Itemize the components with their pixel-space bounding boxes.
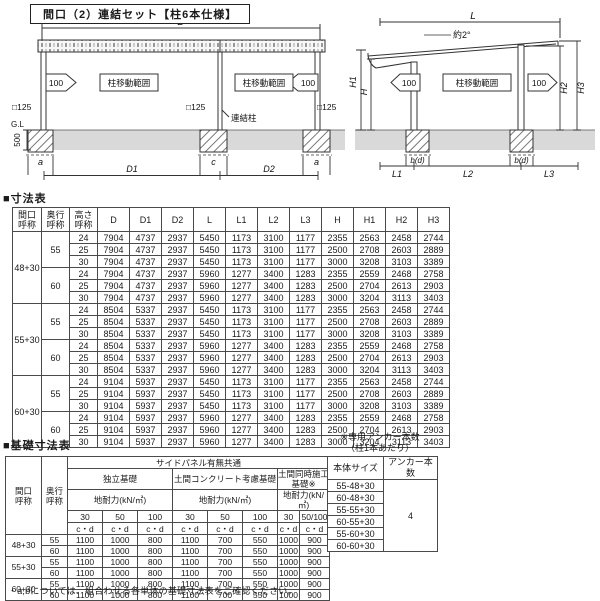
table-cell: 5450	[194, 388, 226, 400]
table-cell: 30	[70, 364, 98, 376]
dim-table-row: 3085045337293759601277340012833000320431…	[13, 364, 450, 376]
front-move-range-left: 柱移動範囲	[108, 78, 151, 88]
table-cell: 700	[208, 535, 243, 546]
table-cell: 700	[208, 557, 243, 568]
dim-table-row: 6024790447372937596012773400128323552559…	[13, 268, 450, 280]
table-cell: 2937	[162, 412, 194, 424]
table-cell: 30	[70, 328, 98, 340]
table-cell: 2937	[162, 376, 194, 388]
side-arrow-value-right: 100	[532, 78, 546, 88]
table-cell: 25	[70, 316, 98, 328]
table-cell: 3400	[258, 280, 290, 292]
table-cell: 3400	[258, 292, 290, 304]
anchor-table: 本体サイズ アンカー本数 55-48+30460-48+3055-55+3060…	[327, 456, 438, 552]
table-cell: 3400	[258, 340, 290, 352]
table-cell: 5960	[194, 280, 226, 292]
table-cell: 1283	[290, 352, 322, 364]
table-cell: 1283	[290, 340, 322, 352]
table-cell: 5450	[194, 232, 226, 244]
table-cell: 24	[70, 376, 98, 388]
table-cell: 900	[300, 546, 330, 557]
table-cell: 900	[300, 568, 330, 579]
table-cell: 5337	[130, 316, 162, 328]
table-cell: 2500	[322, 244, 354, 256]
table-cell: 900	[300, 579, 330, 590]
table-cell: 2355	[322, 232, 354, 244]
table-cell: 1000	[103, 557, 138, 568]
table-cell: 2937	[162, 388, 194, 400]
foundation-header-row: 間口 呼称 奥行 呼称 サイドパネル有無共通	[6, 457, 330, 469]
bearing-value: 30	[173, 511, 208, 523]
table-cell: 1283	[290, 364, 322, 376]
body-size-cell: 60-55+30	[328, 516, 384, 528]
depth-label-cell: 55	[42, 376, 70, 412]
table-cell: 5450	[194, 400, 226, 412]
front-embed-depth-label: 500	[13, 133, 22, 147]
table-cell: 1177	[290, 232, 322, 244]
side-dim-l2-label: L2	[463, 169, 473, 179]
table-cell: 2458	[386, 304, 418, 316]
table-cell: 1173	[226, 316, 258, 328]
front-joint-post-label: 連結柱	[231, 113, 257, 123]
anchor-note-line1: ※専用アンカー本数	[300, 432, 460, 443]
dim-table-row: 6024910459372937596012773400128323552559…	[13, 412, 450, 424]
table-cell: 1100	[68, 546, 103, 557]
table-cell: 3389	[418, 328, 450, 340]
table-cell: 25	[70, 244, 98, 256]
table-cell: 3400	[258, 364, 290, 376]
width-label-cell: 48+30	[6, 535, 42, 557]
table-cell: 5937	[130, 388, 162, 400]
table-cell: 1277	[226, 280, 258, 292]
front-post-left	[41, 52, 46, 130]
depth-label-cell: 55	[42, 232, 70, 268]
table-cell: 1173	[226, 328, 258, 340]
table-cell: 3103	[386, 328, 418, 340]
table-cell: 3113	[386, 364, 418, 376]
bearing-header: 地耐力(kN/㎡)	[68, 490, 173, 511]
table-cell: 1177	[290, 388, 322, 400]
table-cell: 1277	[226, 436, 258, 448]
table-cell: 2937	[162, 364, 194, 376]
front-arrow-value-right: 100	[301, 78, 315, 88]
table-cell: 7904	[98, 280, 130, 292]
table-cell: 3403	[418, 292, 450, 304]
table-cell: 2708	[354, 244, 386, 256]
table-cell: 3400	[258, 268, 290, 280]
table-cell: 550	[243, 557, 278, 568]
table-cell: 1000	[278, 546, 300, 557]
dim-table-row: 2579044737293754501173310011772500270826…	[13, 244, 450, 256]
bearing-value: 100	[243, 511, 278, 523]
table-cell: 1177	[290, 244, 322, 256]
table-cell: 24	[70, 268, 98, 280]
table-cell: 4737	[130, 256, 162, 268]
table-cell: 3100	[258, 328, 290, 340]
table-cell: 5937	[130, 436, 162, 448]
side-dim-h3-label: H3	[576, 82, 586, 94]
table-cell: 3103	[386, 400, 418, 412]
table-cell: 4737	[130, 268, 162, 280]
table-cell: 4737	[130, 292, 162, 304]
side-dim-l1-label: L1	[392, 169, 402, 179]
foundation-table: 間口 呼称 奥行 呼称 サイドパネル有無共通 独立基礎 土間コンクリート考慮基礎…	[5, 456, 330, 601]
body-size-cell: 55-48+30	[328, 480, 384, 492]
dim-table-header-row: 間口 呼称 奥行 呼称 高さ 呼称 D D1 D2 L L1 L2 L3 H H…	[13, 208, 450, 232]
table-cell: 5960	[194, 424, 226, 436]
table-cell: 800	[138, 546, 173, 557]
table-cell: 1173	[226, 244, 258, 256]
anchor-note-line2: （柱1本あたり）	[300, 443, 460, 454]
table-cell: 1000	[103, 568, 138, 579]
anchor-count-header: アンカー本数	[384, 457, 438, 480]
bearing-value: 50	[103, 511, 138, 523]
col-header: D2	[162, 208, 194, 232]
table-cell: 900	[300, 557, 330, 568]
table-cell: 1173	[226, 232, 258, 244]
table-cell: 3000	[322, 364, 354, 376]
table-cell: 3400	[258, 436, 290, 448]
dim-table-body: 48+3055247904473729375450117331001177235…	[13, 232, 450, 448]
depth-label-cell: 60	[42, 568, 68, 579]
table-cell: 2559	[354, 412, 386, 424]
table-cell: 1100	[68, 568, 103, 579]
table-cell: 900	[300, 535, 330, 546]
table-cell: 5450	[194, 376, 226, 388]
table-cell: 30	[70, 292, 98, 304]
front-post-size-left: □125	[12, 102, 32, 112]
table-cell: 5960	[194, 352, 226, 364]
col-header: D	[98, 208, 130, 232]
body-size-cell: 55-55+30	[328, 504, 384, 516]
table-cell: 5960	[194, 292, 226, 304]
side-footing-bd-front: b(d)	[410, 156, 425, 165]
body-size-cell: 55-60+30	[328, 528, 384, 540]
table-cell: 9104	[98, 412, 130, 424]
table-cell: 1173	[226, 376, 258, 388]
table-cell: 2613	[386, 280, 418, 292]
table-cell: 2889	[418, 388, 450, 400]
table-cell: 1283	[290, 412, 322, 424]
table-cell: 1177	[290, 376, 322, 388]
table-cell: 2468	[386, 340, 418, 352]
dim-table-row: 2579044737293759601277340012832500270426…	[13, 280, 450, 292]
table-cell: 550	[243, 568, 278, 579]
table-cell: 24	[70, 412, 98, 424]
table-cell: 1177	[290, 304, 322, 316]
table-cell: 2744	[418, 376, 450, 388]
table-cell: 2500	[322, 316, 354, 328]
table-cell: 2468	[386, 412, 418, 424]
table-cell: 1000	[278, 568, 300, 579]
front-roof-panel	[38, 40, 325, 52]
table-cell: 3208	[354, 400, 386, 412]
side-footing-bd-rear: b(d)	[514, 156, 529, 165]
page-title: 間口（2）連結セット【柱6本仕様】	[30, 4, 250, 24]
col-header: 間口 呼称	[13, 208, 42, 232]
table-cell: 2937	[162, 436, 194, 448]
cd-label: c・d	[173, 523, 208, 535]
table-cell: 800	[138, 557, 173, 568]
table-cell: 2937	[162, 280, 194, 292]
bearing-value: 50/100	[300, 511, 330, 523]
table-cell: 25	[70, 352, 98, 364]
dim-table-row: 6024850453372937596012773400128323552559…	[13, 340, 450, 352]
table-cell: 5337	[130, 328, 162, 340]
table-cell: 1177	[290, 328, 322, 340]
bearing-value: 100	[138, 511, 173, 523]
table-cell: 800	[138, 535, 173, 546]
table-cell: 1177	[290, 256, 322, 268]
table-cell: 550	[243, 535, 278, 546]
side-slope-label: 約2°	[453, 29, 471, 40]
table-cell: 2708	[354, 388, 386, 400]
table-cell: 3400	[258, 424, 290, 436]
table-cell: 700	[208, 568, 243, 579]
table-cell: 3000	[322, 256, 354, 268]
col-header: D1	[130, 208, 162, 232]
dim-table-row: 2585045337293754501173310011772500270826…	[13, 316, 450, 328]
table-cell: 5960	[194, 364, 226, 376]
depth-label-cell: 55	[42, 557, 68, 568]
front-arrow-value-left: 100	[49, 78, 63, 88]
foundation-table-row: 601100100080011007005501000900	[6, 568, 330, 579]
dim-table-row: 3091045937293754501173310011773000320831…	[13, 400, 450, 412]
side-dim-h2-label: H2	[559, 82, 569, 94]
col-header: H3	[418, 208, 450, 232]
front-post-size-right: □125	[317, 102, 337, 112]
table-cell: 3400	[258, 352, 290, 364]
dim-table-row: 48+3055247904473729375450117331001177235…	[13, 232, 450, 244]
table-cell: 2603	[386, 244, 418, 256]
col-header: H2	[386, 208, 418, 232]
width-label-cell: 55+30	[6, 557, 42, 579]
table-cell: 5960	[194, 340, 226, 352]
table-cell: 2758	[418, 340, 450, 352]
col-header: L1	[226, 208, 258, 232]
table-cell: 3100	[258, 388, 290, 400]
table-cell: 2559	[354, 340, 386, 352]
depth-label-cell: 55	[42, 535, 68, 546]
anchor-size-header: 本体サイズ	[328, 457, 384, 480]
table-cell: 9104	[98, 436, 130, 448]
table-cell: 1100	[173, 557, 208, 568]
table-cell: 2937	[162, 352, 194, 364]
table-cell: 30	[70, 436, 98, 448]
col-header-depth: 奥行 呼称	[42, 457, 68, 535]
side-pillar-rear	[518, 45, 524, 130]
foundation-table-heading: ■基礎寸法表	[3, 437, 71, 453]
table-cell: 7904	[98, 232, 130, 244]
table-cell: 1173	[226, 256, 258, 268]
foundation-table-row: 601100100080011007005501000900	[6, 546, 330, 557]
table-cell: 24	[70, 340, 98, 352]
col-header: H	[322, 208, 354, 232]
table-cell: 3100	[258, 304, 290, 316]
table-cell: 1100	[68, 535, 103, 546]
table-cell: 3204	[354, 364, 386, 376]
front-ground-level-label: G.L	[11, 120, 24, 129]
table-cell: 2603	[386, 388, 418, 400]
table-cell: 7904	[98, 256, 130, 268]
table-cell: 24	[70, 232, 98, 244]
table-cell: 3100	[258, 244, 290, 256]
diagram-canvas: D 100 100 柱移動範囲 柱移動範囲 □125 □125 □125 連結柱…	[0, 0, 600, 192]
table-cell: 9104	[98, 424, 130, 436]
front-ground-band	[30, 130, 345, 150]
table-cell: 3403	[418, 364, 450, 376]
dim-table-row: 3079044737293759601277340012833000320431…	[13, 292, 450, 304]
table-cell: 5937	[130, 400, 162, 412]
table-cell: 2937	[162, 340, 194, 352]
table-cell: 1173	[226, 400, 258, 412]
table-cell: 900	[300, 590, 330, 601]
dim-table-row: 2585045337293759601277340012832500270426…	[13, 352, 450, 364]
table-cell: 1277	[226, 352, 258, 364]
table-cell: 2937	[162, 268, 194, 280]
depth-label-cell: 60	[42, 340, 70, 376]
foundation-footnote: ・a,bについては、組合わせる各単体の基礎寸法表をご確認ください。	[8, 584, 297, 597]
table-cell: 5450	[194, 244, 226, 256]
table-cell: 5960	[194, 436, 226, 448]
table-cell: 1277	[226, 268, 258, 280]
depth-label-cell: 55	[42, 304, 70, 340]
foundation-table-row: 55+30551100100080011007005501000900	[6, 557, 330, 568]
front-footing-a-right: a	[314, 157, 319, 167]
body-size-cell: 60-48+30	[328, 492, 384, 504]
depth-label-cell: 60	[42, 268, 70, 304]
table-cell: 4737	[130, 280, 162, 292]
table-cell: 2758	[418, 268, 450, 280]
group-header: 土間コンクリート考慮基礎	[173, 469, 278, 490]
dim-table-heading: ■寸法表	[3, 190, 47, 206]
table-cell: 2937	[162, 328, 194, 340]
table-cell: 7904	[98, 292, 130, 304]
table-cell: 1283	[290, 280, 322, 292]
table-cell: 2937	[162, 424, 194, 436]
side-pillar-front	[411, 62, 417, 130]
side-ground-band	[355, 130, 595, 150]
table-cell: 2903	[418, 352, 450, 364]
table-cell: 1000	[103, 535, 138, 546]
table-cell: 7904	[98, 244, 130, 256]
col-header: 高さ 呼称	[70, 208, 98, 232]
front-dim-d2-label: D2	[263, 164, 275, 174]
table-cell: 2937	[162, 232, 194, 244]
table-cell: 5337	[130, 304, 162, 316]
bearing-value: 50	[208, 511, 243, 523]
side-move-range-label: 柱移動範囲	[456, 78, 499, 88]
width-label-cell: 55+30	[13, 304, 42, 376]
table-cell: 1173	[226, 388, 258, 400]
table-cell: 2355	[322, 340, 354, 352]
table-cell: 2937	[162, 400, 194, 412]
table-cell: 3100	[258, 256, 290, 268]
body-size-cell: 60-60+30	[328, 540, 384, 552]
anchor-table-row: 55-48+304	[328, 480, 438, 492]
table-cell: 8504	[98, 328, 130, 340]
col-header: L2	[258, 208, 290, 232]
table-cell: 8504	[98, 316, 130, 328]
bearing-header: 地耐力(kN/㎡)	[173, 490, 278, 511]
table-cell: 24	[70, 304, 98, 316]
side-dim-lines	[356, 41, 581, 170]
cd-label: c・d	[103, 523, 138, 535]
table-cell: 25	[70, 388, 98, 400]
cd-label: c・d	[208, 523, 243, 535]
table-cell: 2563	[354, 232, 386, 244]
table-cell: 2603	[386, 316, 418, 328]
table-cell: 5937	[130, 424, 162, 436]
table-cell: 2937	[162, 256, 194, 268]
table-cell: 3000	[322, 292, 354, 304]
table-cell: 3100	[258, 400, 290, 412]
side-panel-header: サイドパネル有無共通	[68, 457, 330, 469]
table-cell: 3000	[322, 328, 354, 340]
table-cell: 5450	[194, 304, 226, 316]
table-cell: 1100	[173, 535, 208, 546]
table-cell: 5937	[130, 412, 162, 424]
front-footing-c: c	[211, 157, 216, 167]
front-footing-a-left: a	[38, 157, 43, 167]
anchor-table-body: 55-48+30460-48+3055-55+3060-55+3055-60+3…	[328, 480, 438, 552]
side-dim-l-label: L	[470, 11, 476, 22]
table-cell: 1177	[290, 316, 322, 328]
table-cell: 3100	[258, 376, 290, 388]
table-cell: 1000	[103, 546, 138, 557]
col-header-width: 間口 呼称	[6, 457, 42, 535]
table-cell: 3100	[258, 232, 290, 244]
table-cell: 30	[70, 256, 98, 268]
dimension-table: 間口 呼称 奥行 呼称 高さ 呼称 D D1 D2 L L1 L2 L3 H H…	[12, 207, 450, 448]
col-header: 奥行 呼称	[42, 208, 70, 232]
table-cell: 8504	[98, 352, 130, 364]
table-cell: 1177	[290, 400, 322, 412]
table-cell: 5450	[194, 256, 226, 268]
width-label-cell: 48+30	[13, 232, 42, 304]
table-cell: 2937	[162, 304, 194, 316]
table-cell: 2708	[354, 316, 386, 328]
col-header: L3	[290, 208, 322, 232]
table-cell: 1100	[68, 557, 103, 568]
table-cell: 1277	[226, 364, 258, 376]
table-cell: 9104	[98, 388, 130, 400]
table-cell: 2889	[418, 316, 450, 328]
dim-table-row: 60+3055249104593729375450117331001177235…	[13, 376, 450, 388]
table-cell: 1173	[226, 304, 258, 316]
table-cell: 2458	[386, 376, 418, 388]
side-dim-h1-label: H1	[348, 76, 358, 88]
table-cell: 550	[243, 546, 278, 557]
table-cell: 1277	[226, 292, 258, 304]
table-cell: 2704	[354, 352, 386, 364]
table-cell: 1100	[173, 568, 208, 579]
table-cell: 3000	[322, 400, 354, 412]
table-cell: 4737	[130, 244, 162, 256]
cd-label: c・d	[68, 523, 103, 535]
table-cell: 5337	[130, 364, 162, 376]
table-cell: 1283	[290, 268, 322, 280]
table-cell: 5450	[194, 316, 226, 328]
cd-label: c・d	[278, 523, 300, 535]
table-cell: 3113	[386, 292, 418, 304]
table-cell: 1000	[278, 535, 300, 546]
table-cell: 1100	[173, 546, 208, 557]
table-cell: 4737	[130, 232, 162, 244]
table-cell: 2613	[386, 352, 418, 364]
table-cell: 30	[70, 400, 98, 412]
table-cell: 3208	[354, 256, 386, 268]
